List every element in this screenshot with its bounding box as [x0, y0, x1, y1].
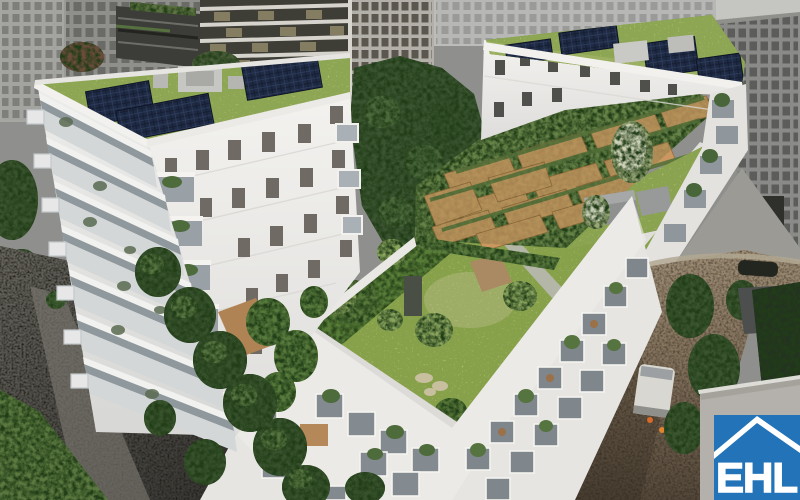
svg-text:EHL: EHL — [716, 454, 797, 500]
